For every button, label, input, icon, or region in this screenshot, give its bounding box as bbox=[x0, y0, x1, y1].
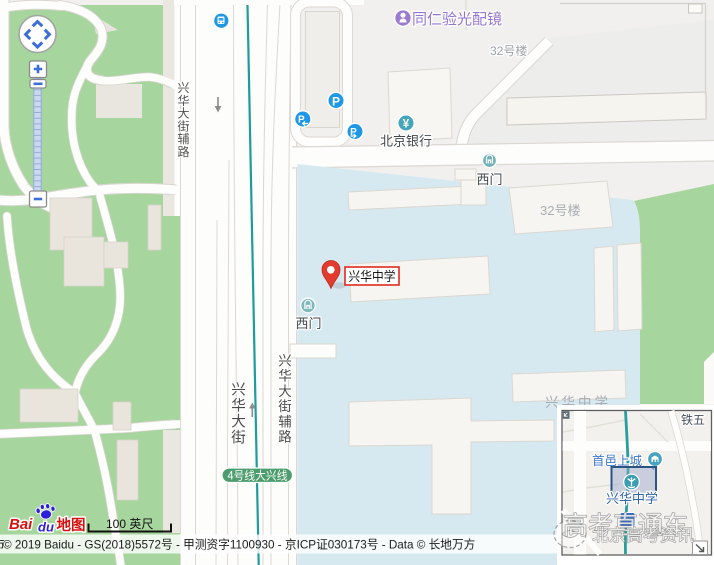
svg-text:100 英尺: 100 英尺 bbox=[106, 517, 153, 531]
svg-text:铁五: 铁五 bbox=[681, 413, 705, 427]
svg-text:西门: 西门 bbox=[296, 316, 322, 331]
svg-text:兴华大街: 兴华大街 bbox=[231, 382, 246, 447]
svg-text:32号楼: 32号楼 bbox=[540, 203, 580, 218]
svg-text:兴华大街辅路: 兴华大街辅路 bbox=[278, 354, 292, 445]
svg-text:同仁验光配镜: 同仁验光配镜 bbox=[412, 10, 502, 28]
svg-text:兴华中学: 兴华中学 bbox=[606, 491, 658, 506]
svg-text:地图: 地图 bbox=[57, 516, 86, 534]
svg-text:北京高考资讯: 北京高考资讯 bbox=[592, 526, 694, 545]
svg-text:北京银行: 北京银行 bbox=[380, 134, 432, 149]
svg-text:32号楼: 32号楼 bbox=[490, 43, 527, 58]
svg-text:4号线大兴线: 4号线大兴线 bbox=[228, 469, 288, 483]
svg-text:兴华中学: 兴华中学 bbox=[349, 269, 396, 284]
svg-text:P: P bbox=[332, 95, 340, 109]
svg-text:du: du bbox=[38, 520, 54, 535]
svg-text:首邑上城: 首邑上城 bbox=[592, 454, 643, 468]
svg-text:¥: ¥ bbox=[403, 119, 410, 131]
svg-text:Bai: Bai bbox=[9, 516, 33, 533]
svg-text:西门: 西门 bbox=[477, 172, 503, 187]
svg-text:兴华大街辅路: 兴华大街辅路 bbox=[177, 81, 189, 159]
svg-text:© 2019 Baidu - GS(2018)5572号 -: © 2019 Baidu - GS(2018)5572号 - 甲测资字11009… bbox=[3, 538, 475, 552]
